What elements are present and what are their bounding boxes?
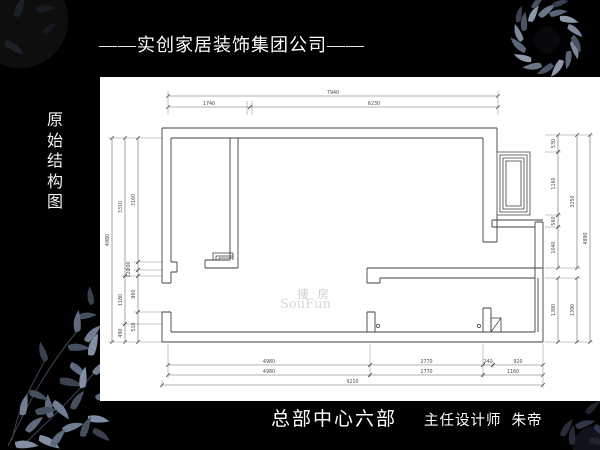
title-char: 图	[43, 193, 67, 214]
dim-label: 3310	[118, 201, 124, 213]
leaf-cluster-bottom-right-icon	[556, 401, 600, 450]
dim-label: 4980	[263, 359, 275, 365]
dim-label: 4890	[583, 232, 589, 244]
designer-name: 朱帝	[512, 413, 543, 429]
dim-label: 530	[551, 139, 557, 148]
dim-label: 510	[131, 322, 137, 331]
title-char: 始	[43, 132, 67, 153]
dim-label: 9210	[346, 379, 358, 385]
designer-label: 主任设计师朱帝	[424, 409, 543, 430]
title-char: 原	[43, 111, 67, 132]
dim-label: 6230	[368, 101, 380, 107]
dim-label: 3160	[131, 194, 137, 206]
door-pivot-icon	[477, 324, 480, 327]
bay-window	[497, 152, 530, 215]
company-title: ——实创家居装饰集团公司——	[0, 31, 464, 57]
dim-label: 1160	[551, 177, 557, 189]
title-char: 结	[43, 152, 67, 173]
door-pivot-icon	[376, 324, 379, 327]
dim-label: 920	[513, 359, 522, 365]
dim-label: 1160	[507, 369, 519, 375]
dim-label: 2770	[420, 359, 432, 365]
dim-label: 4980	[263, 369, 275, 375]
dim-label: 490	[118, 328, 124, 337]
presentation-slide: { "header": { "company_title": "——实创家居装饰…	[0, 0, 600, 450]
floor-plan-panel: 7940174062304980277024092049802770116092…	[100, 77, 600, 401]
dimension-extension-lines	[108, 91, 593, 388]
leaf-wreath-icon	[511, 0, 583, 77]
title-char: 构	[43, 173, 67, 194]
dim-label: 7940	[327, 90, 339, 96]
dim-label: 240	[483, 359, 492, 365]
dim-label: 1390	[570, 304, 576, 316]
door-leaf	[491, 318, 501, 332]
watermark-en: SouFun	[280, 297, 331, 312]
dim-label: 1180	[118, 294, 124, 306]
dim-label: 1380	[551, 304, 557, 316]
floor-plan-drawing: 7940174062304980277024092049802770116092…	[100, 77, 600, 401]
dim-label: 1740	[203, 101, 215, 107]
drawing-title-vertical: 原 始 结 构 图	[43, 111, 67, 214]
dim-label: 2770	[420, 369, 432, 375]
designer-role: 主任设计师	[424, 413, 502, 429]
dim-label: 560	[551, 216, 557, 225]
department-label: 总部中心六部	[271, 404, 397, 431]
dim-label: 4980	[105, 234, 111, 246]
dim-label: 1040	[551, 241, 557, 253]
dim-label: 960	[131, 289, 137, 298]
watermark: 搜房 SouFun	[280, 287, 338, 312]
dim-label: 3250	[570, 195, 576, 207]
dim-label: 120	[126, 268, 132, 277]
wall-outline	[162, 128, 543, 342]
